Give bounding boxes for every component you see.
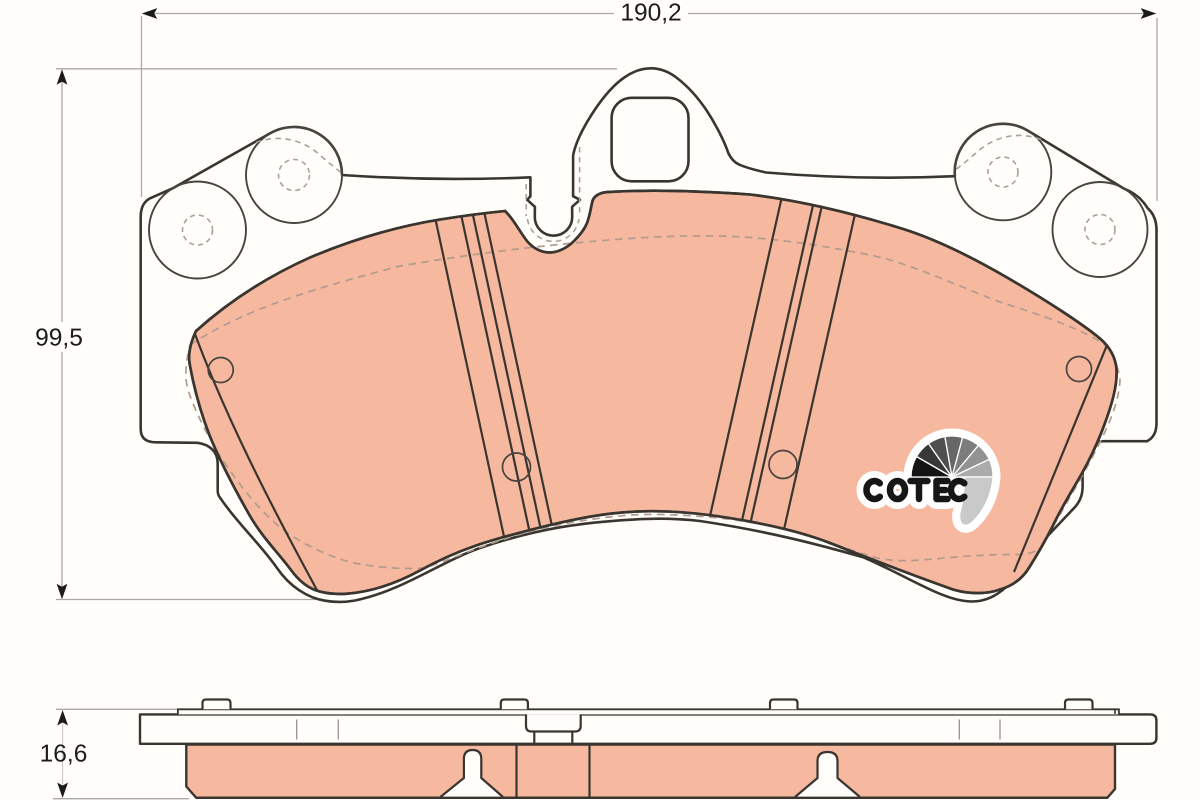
svg-text:190,2: 190,2 [620, 0, 681, 27]
svg-text:16,6: 16,6 [40, 741, 88, 768]
svg-text:99,5: 99,5 [35, 325, 83, 352]
